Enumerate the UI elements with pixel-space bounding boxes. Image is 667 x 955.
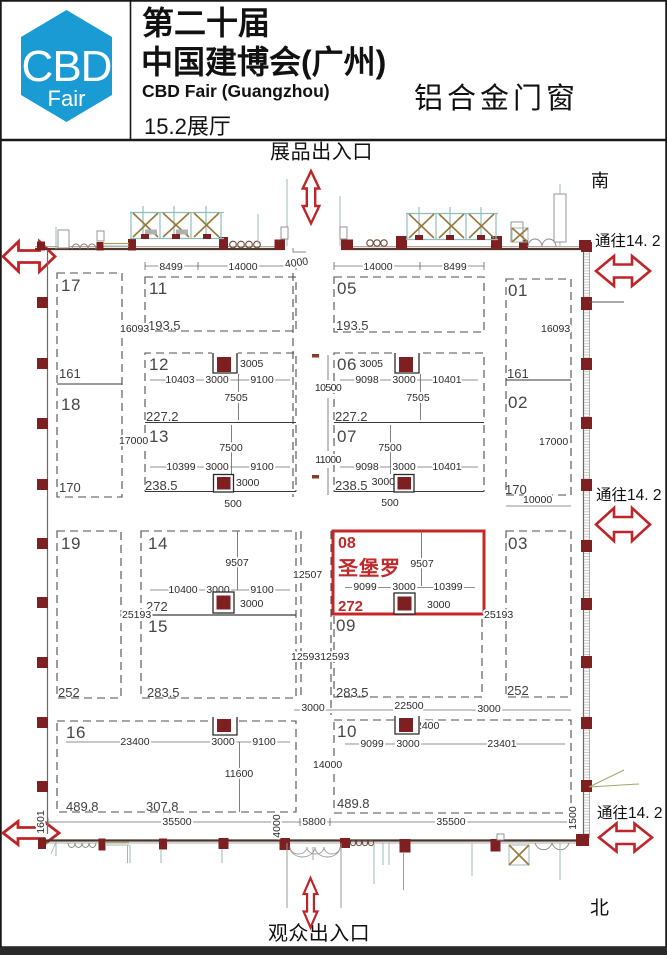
svg-text:3000: 3000 <box>301 702 325 714</box>
svg-text:283.5: 283.5 <box>147 685 180 700</box>
svg-text:3000: 3000 <box>236 477 260 489</box>
svg-text:9098: 9098 <box>355 374 379 386</box>
svg-text:10401: 10401 <box>432 461 461 473</box>
svg-text:238.5: 238.5 <box>335 478 368 493</box>
svg-text:10500: 10500 <box>315 382 342 394</box>
svg-text:10403: 10403 <box>165 374 194 386</box>
svg-text:9100: 9100 <box>252 736 276 748</box>
svg-text:7505: 7505 <box>224 392 248 404</box>
svg-text:500: 500 <box>381 497 399 509</box>
svg-text:通往14. 2: 通往14. 2 <box>597 804 662 822</box>
svg-text:19: 19 <box>61 534 81 553</box>
svg-text:16093: 16093 <box>120 323 149 335</box>
svg-text:03: 03 <box>508 534 528 553</box>
svg-text:3000: 3000 <box>477 703 501 715</box>
svg-text:9100: 9100 <box>250 584 274 596</box>
svg-text:9507: 9507 <box>410 558 434 570</box>
svg-text:第二十届: 第二十届 <box>142 5 270 41</box>
svg-text:9507: 9507 <box>225 557 249 569</box>
svg-text:3000: 3000 <box>372 476 396 488</box>
svg-text:307.8: 307.8 <box>146 799 179 814</box>
svg-text:5800: 5800 <box>302 816 326 828</box>
svg-text:227.2: 227.2 <box>335 409 368 424</box>
svg-text:500: 500 <box>224 498 242 510</box>
svg-text:17000: 17000 <box>539 436 568 448</box>
svg-text:7500: 7500 <box>378 442 402 454</box>
svg-text:1601: 1601 <box>35 810 47 834</box>
svg-text:3000: 3000 <box>392 374 416 386</box>
svg-text:9099: 9099 <box>353 581 377 593</box>
svg-text:489.8: 489.8 <box>337 796 370 811</box>
svg-text:北: 北 <box>590 897 609 919</box>
svg-text:9099: 9099 <box>360 738 384 750</box>
svg-text:252: 252 <box>507 683 529 698</box>
svg-text:10000: 10000 <box>523 494 552 506</box>
svg-text:35500: 35500 <box>162 816 191 828</box>
svg-text:16: 16 <box>66 723 86 742</box>
svg-text:通往14. 2: 通往14. 2 <box>595 232 660 250</box>
svg-text:CBD: CBD <box>22 42 112 91</box>
svg-text:15.2展厅: 15.2展厅 <box>144 114 231 139</box>
svg-text:8499: 8499 <box>443 261 467 273</box>
svg-text:3000: 3000 <box>205 374 229 386</box>
svg-text:9100: 9100 <box>250 374 274 386</box>
svg-text:252: 252 <box>58 685 80 700</box>
svg-text:3000: 3000 <box>427 599 451 611</box>
svg-text:3000: 3000 <box>396 738 420 750</box>
svg-text:1259312593: 1259312593 <box>291 651 350 663</box>
svg-text:161: 161 <box>507 366 529 381</box>
svg-text:06: 06 <box>337 355 357 374</box>
svg-text:23400: 23400 <box>120 736 149 748</box>
svg-text:05: 05 <box>337 279 357 298</box>
svg-text:283.5: 283.5 <box>336 685 369 700</box>
svg-text:10399: 10399 <box>166 461 195 473</box>
svg-text:14: 14 <box>148 534 168 553</box>
svg-text:3005: 3005 <box>240 358 264 370</box>
svg-text:4000: 4000 <box>271 814 283 838</box>
svg-text:227.2: 227.2 <box>146 409 179 424</box>
svg-text:02: 02 <box>508 393 528 412</box>
svg-text:193.5: 193.5 <box>336 318 369 333</box>
svg-text:8499: 8499 <box>159 261 183 273</box>
svg-text:12507: 12507 <box>293 569 322 581</box>
svg-text:25193: 25193 <box>484 609 513 621</box>
svg-text:11000: 11000 <box>315 454 341 466</box>
svg-text:17000: 17000 <box>119 435 148 447</box>
svg-text:193.5: 193.5 <box>148 318 181 333</box>
svg-text:10400: 10400 <box>168 584 197 596</box>
svg-text:9098: 9098 <box>355 461 379 473</box>
svg-text:10: 10 <box>337 722 357 741</box>
svg-text:3005: 3005 <box>360 358 384 370</box>
svg-text:17: 17 <box>61 276 81 295</box>
svg-text:11: 11 <box>149 279 168 298</box>
svg-text:10401: 10401 <box>432 374 461 386</box>
svg-text:3000: 3000 <box>392 581 416 593</box>
svg-text:9100: 9100 <box>250 461 274 473</box>
svg-text:25193: 25193 <box>122 609 151 621</box>
svg-text:489.8: 489.8 <box>66 799 99 814</box>
svg-text:中国建博会(广州): 中国建博会(广州) <box>141 44 386 80</box>
svg-text:1500: 1500 <box>567 806 579 830</box>
svg-text:通往14. 2: 通往14. 2 <box>596 486 661 504</box>
svg-text:展品出入口: 展品出入口 <box>270 141 373 164</box>
svg-text:3000: 3000 <box>240 598 264 610</box>
svg-text:南: 南 <box>591 171 609 191</box>
svg-text:16093: 16093 <box>541 323 570 335</box>
svg-text:07: 07 <box>337 427 357 446</box>
svg-text:161: 161 <box>59 366 81 381</box>
svg-text:238.5: 238.5 <box>145 478 178 493</box>
svg-text:22500: 22500 <box>394 700 423 712</box>
svg-text:3000: 3000 <box>392 461 416 473</box>
svg-text:14000: 14000 <box>363 261 392 273</box>
svg-text:7500: 7500 <box>219 442 243 454</box>
svg-text:7505: 7505 <box>406 392 430 404</box>
svg-text:CBD Fair (Guangzhou): CBD Fair (Guangzhou) <box>142 81 330 101</box>
svg-text:14000: 14000 <box>313 759 342 771</box>
svg-text:3000: 3000 <box>211 736 235 748</box>
svg-text:09: 09 <box>336 616 356 635</box>
svg-text:170: 170 <box>59 480 81 495</box>
svg-text:23401: 23401 <box>487 738 516 750</box>
svg-text:18: 18 <box>61 395 81 414</box>
svg-text:Fair: Fair <box>48 86 86 111</box>
svg-text:3000: 3000 <box>205 461 229 473</box>
svg-text:272: 272 <box>338 598 363 615</box>
svg-text:08: 08 <box>338 535 356 552</box>
svg-text:11600: 11600 <box>225 768 254 780</box>
svg-text:35500: 35500 <box>436 816 465 828</box>
svg-text:13: 13 <box>149 427 169 446</box>
svg-text:14000: 14000 <box>228 261 257 273</box>
svg-text:12: 12 <box>149 355 169 374</box>
svg-text:01: 01 <box>508 281 528 300</box>
svg-text:观众出入口: 观众出入口 <box>268 922 370 945</box>
svg-text:铝合金门窗: 铝合金门窗 <box>414 82 579 115</box>
svg-text:10399: 10399 <box>433 581 462 593</box>
svg-text:圣堡罗: 圣堡罗 <box>338 556 401 580</box>
